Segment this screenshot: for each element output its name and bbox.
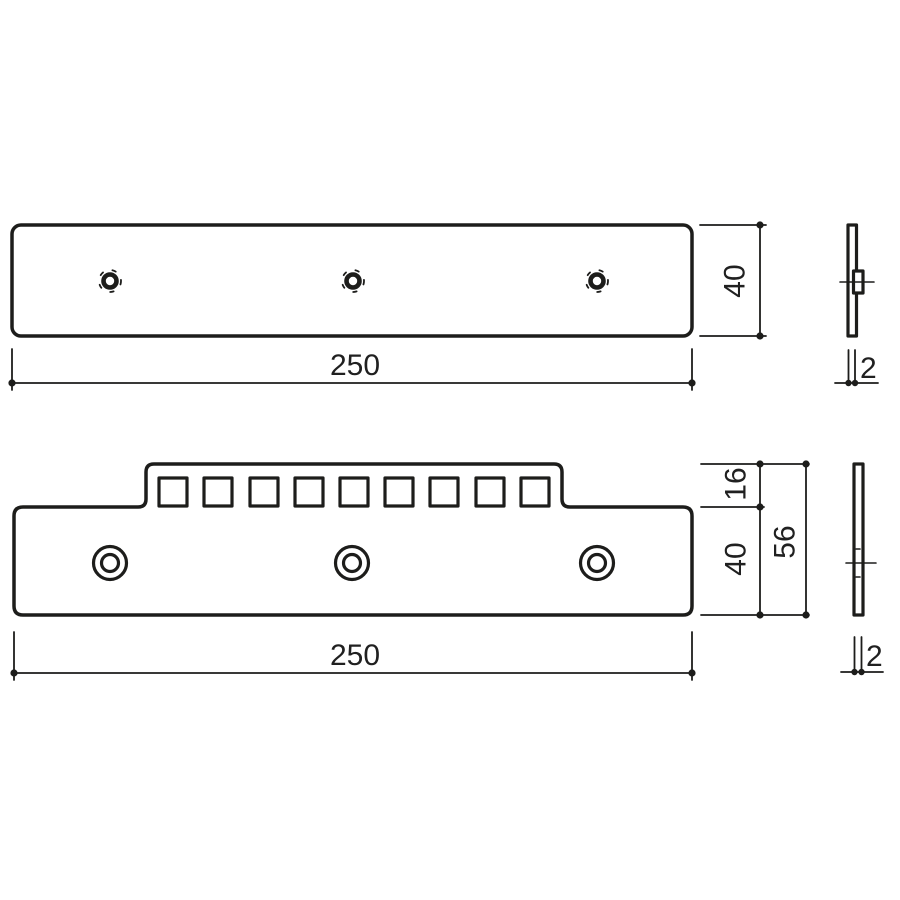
dimension-dot — [756, 221, 763, 228]
dimension-dot — [802, 460, 809, 467]
mounting-hole-inner — [102, 555, 119, 572]
width-value: 250 — [330, 639, 380, 672]
dimension-dot — [845, 380, 851, 386]
dimension-dot — [858, 669, 864, 675]
technical-drawing: 250 40 2 — [0, 0, 900, 900]
width-value: 250 — [330, 349, 380, 382]
slot-cutout — [476, 478, 504, 506]
slot-cutout — [430, 478, 458, 506]
dimension-dot — [802, 611, 809, 618]
slot-cutout — [204, 478, 232, 506]
dimension-dot — [688, 379, 695, 386]
slot-cutout — [159, 478, 187, 506]
side-profile — [854, 464, 863, 615]
body-height-value: 40 — [720, 542, 753, 575]
height-value: 40 — [719, 264, 752, 297]
tab-height-value: 16 — [720, 467, 753, 500]
total-height-value: 56 — [769, 525, 802, 558]
dimension-dot — [688, 669, 695, 676]
thickness-value: 2 — [860, 352, 877, 385]
dimension-dot — [756, 611, 763, 618]
mounting-hole-inner — [344, 555, 361, 572]
notched-plate-height-dimensions: 16 40 56 — [701, 460, 810, 618]
dimension-dot — [851, 669, 857, 675]
mounting-hole — [94, 547, 127, 580]
slot-cutout — [521, 478, 549, 506]
dimension-dot — [756, 332, 763, 339]
slot-cutout — [385, 478, 413, 506]
pilot-hole-ring — [591, 275, 604, 288]
thickness-value: 2 — [866, 640, 883, 673]
slot-cutout — [340, 478, 368, 506]
flat-plate-height-dimension: 40 — [700, 221, 766, 339]
dimension-dot — [8, 379, 15, 386]
dimension-dot — [852, 380, 858, 386]
pilot-hole-ring — [104, 275, 117, 288]
slot-cutout — [295, 478, 323, 506]
notched-plate-width-dimension: 250 — [10, 632, 695, 680]
notched-plate-side-view — [846, 464, 876, 615]
slot-cutout — [250, 478, 278, 506]
flat-plate-front-view — [12, 225, 692, 336]
mounting-hole — [581, 547, 614, 580]
flat-plate-side-view — [840, 225, 874, 336]
dimension-dot — [10, 669, 17, 676]
flat-plate-width-dimension: 250 — [8, 349, 695, 390]
flat-plate-thickness-dimension: 2 — [835, 350, 878, 386]
pilot-hole-ring — [347, 275, 360, 288]
notched-plate-front-view — [14, 464, 692, 615]
technical-drawing-page: 250 40 2 — [0, 0, 900, 900]
notched-plate-thickness-dimension: 2 — [841, 637, 883, 675]
dimension-dot — [756, 460, 763, 467]
mounting-hole — [336, 547, 369, 580]
mounting-hole-inner — [589, 555, 606, 572]
dimension-dot — [756, 503, 763, 510]
